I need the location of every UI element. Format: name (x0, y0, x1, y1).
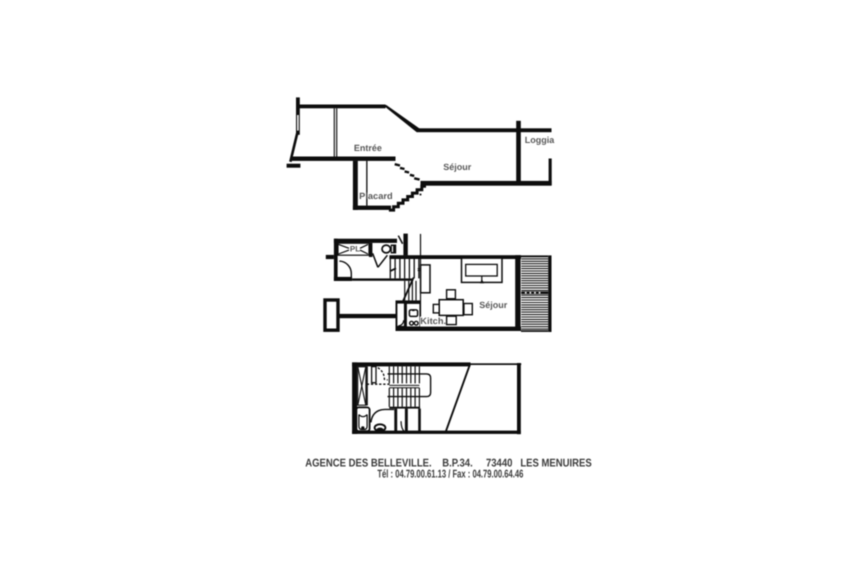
svg-text:Loggia: Loggia (525, 135, 555, 145)
svg-text:Kitch.: Kitch. (420, 316, 446, 326)
svg-text:Séjour: Séjour (443, 162, 472, 172)
svg-text:Tél : 04.79.00.61.13 / Fax : 0: Tél : 04.79.00.61.13 / Fax : 04.79.00.64… (377, 469, 523, 481)
svg-text:AGENCE DES BELLEVILLE. B.P.: AGENCE DES BELLEVILLE. B.P.34. 73440 LES… (305, 457, 592, 469)
svg-text:Séjour: Séjour (479, 300, 508, 310)
svg-text:PL: PL (350, 245, 360, 254)
svg-text:Placard: Placard (359, 191, 393, 201)
svg-text:Entrée: Entrée (354, 143, 382, 153)
